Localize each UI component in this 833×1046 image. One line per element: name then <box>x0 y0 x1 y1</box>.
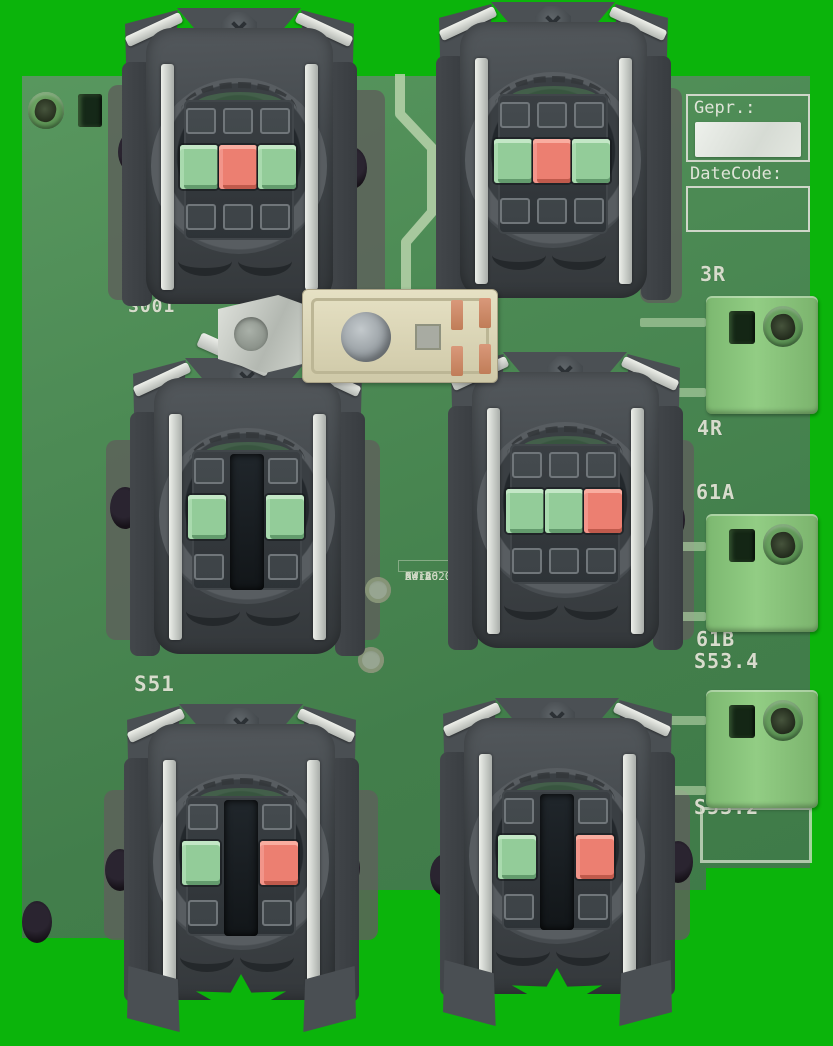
plunger-green <box>545 489 583 533</box>
pcb-photo: KW A Serv A4186 04-2020 Gepr.: DateCode:… <box>0 0 833 1046</box>
silkscreen-label-3r: 3R <box>700 262 726 286</box>
plunger-red <box>219 145 257 189</box>
terminal-block-right-3 <box>706 690 818 808</box>
wire-entry-hole <box>729 706 755 738</box>
terminal-block-right-2 <box>706 514 818 632</box>
contact-slot <box>186 596 240 626</box>
retainer-bar <box>479 754 492 980</box>
silkscreen-label-s53-4: S53.4 <box>694 649 759 673</box>
pcb-trace <box>640 318 706 327</box>
plunger-red <box>533 139 571 183</box>
plunger-green <box>258 145 296 189</box>
plunger-green <box>188 495 226 539</box>
retainer-bar <box>307 760 320 986</box>
plunger-red <box>576 835 614 879</box>
contact-slot <box>246 596 300 626</box>
datecode-frame <box>686 186 810 232</box>
plunger-green <box>180 145 218 189</box>
datecode-label: DateCode: <box>690 164 782 184</box>
contact-slot <box>178 246 232 276</box>
contact-slot <box>240 942 294 972</box>
contact-slot <box>564 590 618 620</box>
plunger-green <box>266 495 304 539</box>
retainer-bar <box>619 58 632 284</box>
terminal-screw <box>763 525 803 565</box>
plunger-empty <box>224 800 258 936</box>
retainer-bar <box>161 64 174 290</box>
plunger-green <box>572 139 610 183</box>
gepr-frame: Gepr.: <box>686 94 810 162</box>
terminal-screw <box>763 307 803 347</box>
retainer-bar <box>313 414 326 640</box>
contact-slot <box>556 936 610 966</box>
plunger-empty <box>230 454 264 590</box>
pushbutton-socket-bottom-right <box>440 698 675 1032</box>
plunger-green <box>494 139 532 183</box>
terminal-screw <box>763 701 803 741</box>
plunger-red <box>260 841 298 885</box>
contact-slot <box>238 246 292 276</box>
gepr-label: Gepr.: <box>694 98 755 118</box>
pushbutton-socket-middle-right <box>448 352 683 652</box>
copper-contact <box>479 344 491 374</box>
silkscreen-label-4r: 4R <box>697 416 723 440</box>
plunger-green <box>182 841 220 885</box>
retainer-bar <box>623 754 636 980</box>
wire-entry-hole <box>78 95 102 127</box>
retainer-bar <box>487 408 500 634</box>
lamp-holder <box>210 283 500 389</box>
copper-contact <box>451 346 463 376</box>
plunger-empty <box>540 794 574 930</box>
pushbutton-socket-top-left <box>122 8 357 308</box>
retainer-bar <box>163 760 176 986</box>
terminal-screw <box>28 93 64 129</box>
inspection-sticker <box>695 122 801 157</box>
contact-slot <box>180 942 234 972</box>
contact-pocket <box>415 324 441 350</box>
plunger-red <box>584 489 622 533</box>
retainer-bar <box>631 408 644 634</box>
contact-slot <box>552 240 606 270</box>
inspection-box: Gepr.: DateCode: <box>686 94 810 236</box>
pushbutton-socket-top-right <box>436 2 671 302</box>
copper-contact <box>479 298 491 328</box>
wire-entry-hole <box>729 312 755 344</box>
holder-body <box>302 289 498 383</box>
plunger-green <box>506 489 544 533</box>
silkscreen-label-61a: 61A <box>696 480 735 504</box>
terminal-block-right-1 <box>706 296 818 414</box>
led-dome <box>341 312 391 362</box>
pushbutton-socket-bottom-left <box>124 704 359 1038</box>
plunger-green <box>498 835 536 879</box>
copper-contact <box>451 300 463 330</box>
retainer-bar <box>169 414 182 640</box>
silkscreen-label-s51: S51 <box>134 672 175 696</box>
metal-bracket <box>218 295 304 373</box>
pushbutton-socket-middle-left <box>130 358 365 658</box>
contact-slot <box>504 590 558 620</box>
mounting-hole <box>22 901 52 943</box>
contact-slot <box>496 936 550 966</box>
print-line-4: 04-2020 <box>405 566 451 587</box>
contact-slot <box>492 240 546 270</box>
retainer-bar <box>475 58 488 284</box>
solder-pad <box>365 577 391 603</box>
wire-entry-hole <box>729 530 755 562</box>
retainer-bar <box>305 64 318 290</box>
